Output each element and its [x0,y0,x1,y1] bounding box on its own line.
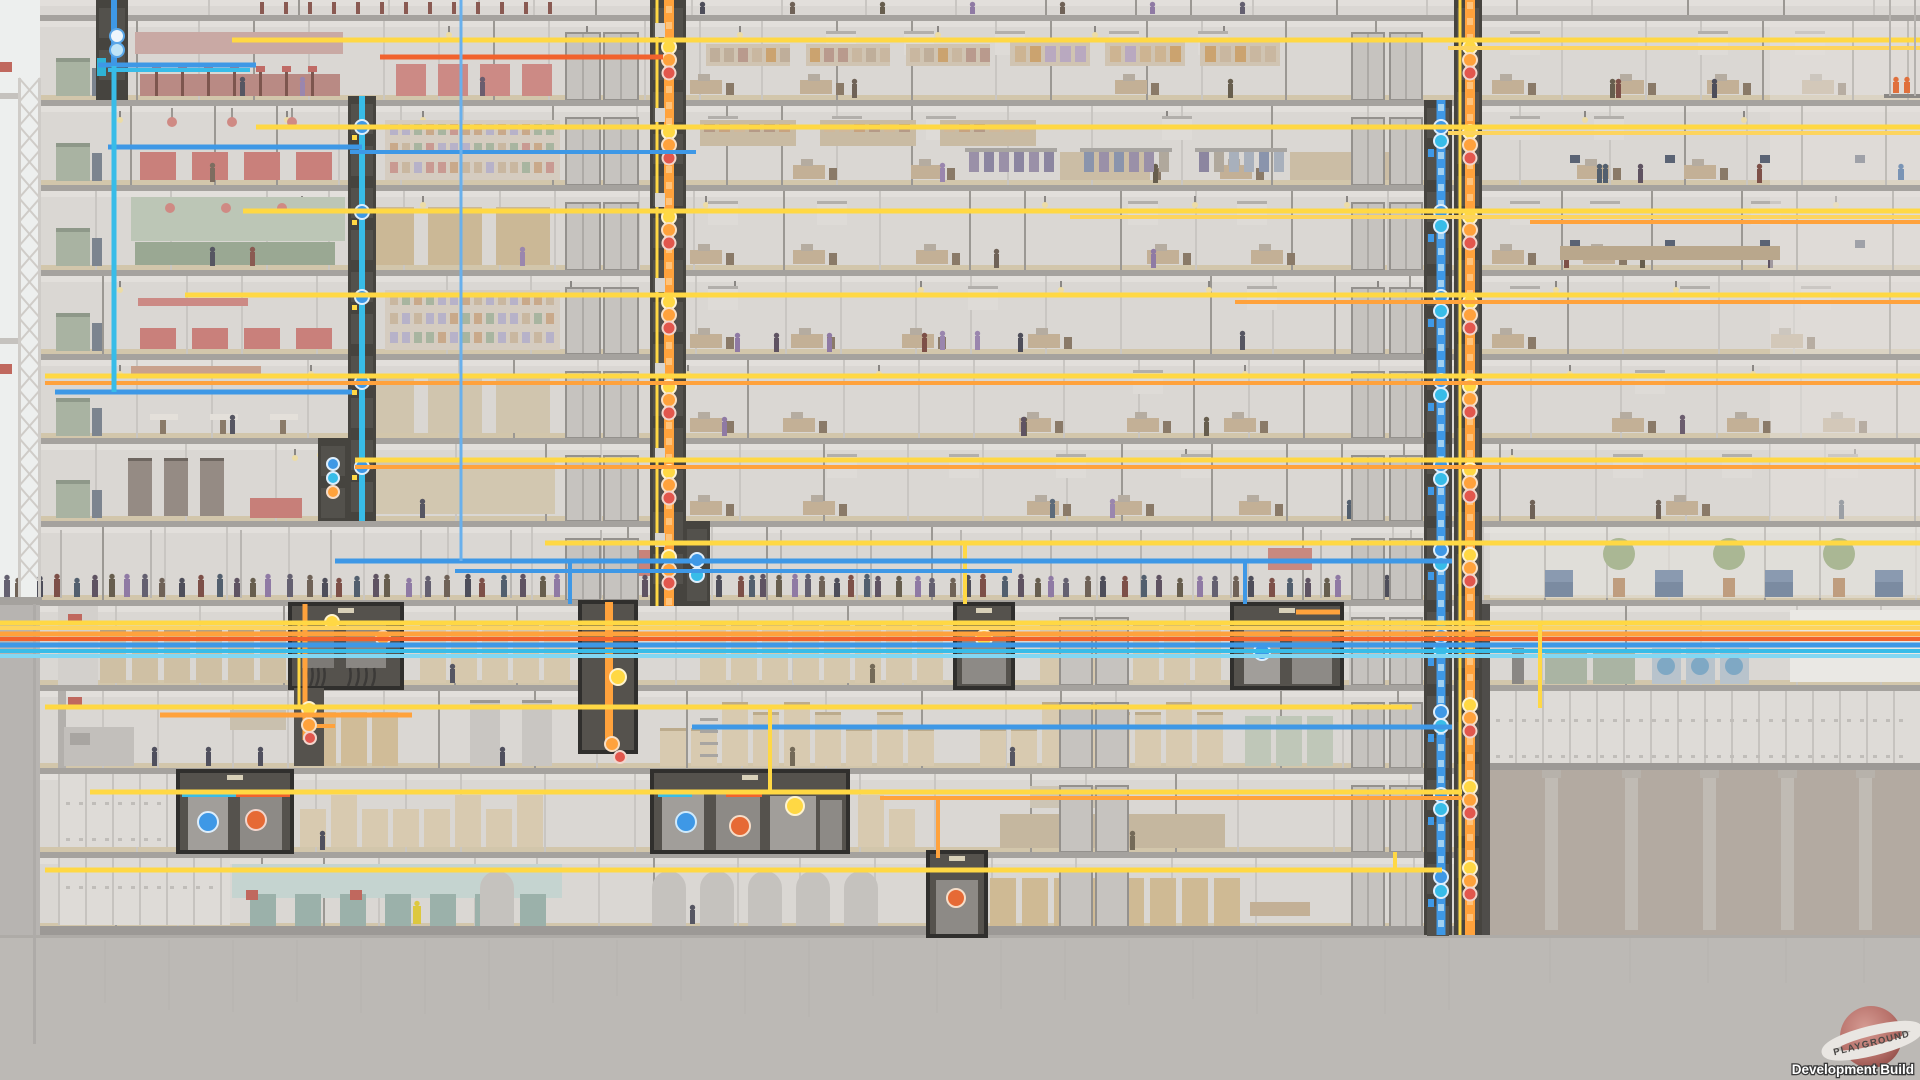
svg-text:Development Build: Development Build [1792,1062,1914,1077]
